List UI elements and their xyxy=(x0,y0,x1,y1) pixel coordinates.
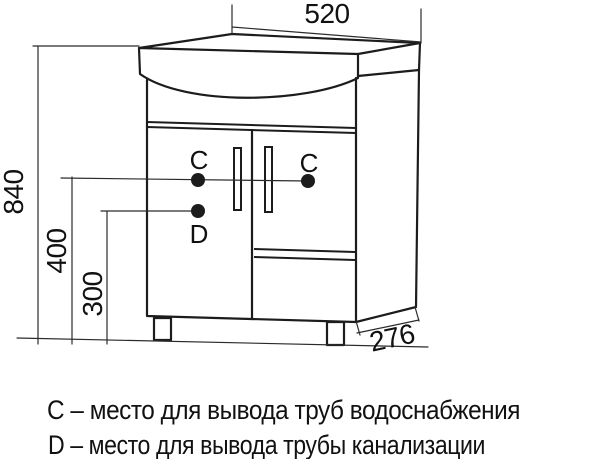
ground-line xyxy=(17,338,428,347)
caption-line-2: D – место для вывода трубы канализации xyxy=(48,430,485,459)
d-dot xyxy=(191,204,205,218)
sink-apron xyxy=(139,48,358,98)
left-door-handle xyxy=(234,148,241,210)
caption-line-1: C – место для вывода труб водоснабжения xyxy=(47,395,520,425)
sink-top xyxy=(139,34,420,54)
left-leg xyxy=(154,318,171,340)
label-d: D xyxy=(190,219,209,249)
dim-300-label: 300 xyxy=(77,271,108,316)
vanity-cabinet xyxy=(139,34,420,345)
dim-520-label: 520 xyxy=(304,0,349,29)
label-c-left: C xyxy=(190,145,209,175)
dim-276-label: 276 xyxy=(367,318,418,358)
dim-840-label: 840 xyxy=(0,169,29,214)
right-door-handle xyxy=(265,147,272,212)
c-dot-left xyxy=(191,173,205,187)
right-leg xyxy=(327,322,344,345)
cabinet-side-panel xyxy=(356,70,419,322)
label-c-right: C xyxy=(300,148,319,178)
drawing-svg: 21vek.by xyxy=(0,0,600,459)
vanity-dimension-drawing: 21vek.by xyxy=(0,0,600,459)
drawer-lines xyxy=(254,249,355,260)
dim-400-label: 400 xyxy=(41,228,72,273)
